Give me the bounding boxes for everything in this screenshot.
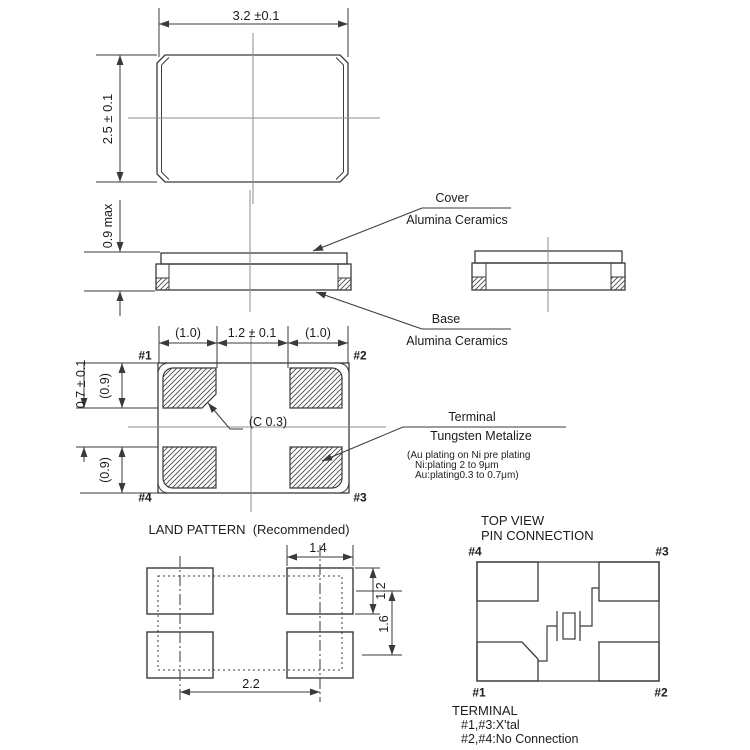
pin-connection-title-line1: TOP VIEW: [481, 514, 544, 528]
dim-pad-spacing: 1.2 ± 0.1: [228, 327, 277, 341]
pin-connection-title-line2: PIN CONNECTION: [481, 529, 594, 543]
pc-trace-pin3: [580, 588, 599, 626]
pin-connection-pin-4: #4: [468, 545, 481, 558]
terminal-label: Terminal: [448, 411, 495, 425]
chamfer-note: (C 0.3): [249, 416, 287, 430]
pad-1-with-chamfer: [163, 368, 216, 408]
pad-2: [290, 368, 342, 408]
cover-material-label: Alumina Ceramics: [406, 214, 507, 228]
land-pattern-title: LAND PATTERN (Recommended): [148, 523, 349, 537]
bottom-view-pin-4: #4: [138, 491, 151, 504]
cover-label: Cover: [435, 192, 468, 206]
pc-pad-1: [477, 642, 538, 681]
dim-package-thickness: 0.9 max: [102, 204, 116, 248]
pin-connection-pin-1: #1: [472, 686, 485, 699]
terminal-material-label: Tungsten Metalize: [430, 430, 532, 444]
dim-land-pitch-vertical: 1.6: [378, 615, 392, 632]
base-material-label: Alumina Ceramics: [406, 335, 507, 349]
terminal-legend-line1: #1,#3:X'tal: [461, 719, 520, 733]
bottom-view-pin-3: #3: [353, 491, 366, 504]
top-view-dimensions: [96, 8, 348, 182]
base-callout-leader: [316, 292, 511, 329]
pc-pad-2: [599, 642, 659, 681]
pc-trace-pin1: [538, 626, 557, 661]
bottom-view-pin-1: #1: [138, 349, 151, 362]
dim-land-pitch-horizontal: 2.2: [242, 678, 259, 692]
dim-land-pad-width: 1.4: [309, 542, 326, 556]
datasheet-drawing-page: 3.2 ±0.1 2.5 ± 0.1 0.9 max Cover Alumina…: [0, 0, 750, 750]
pin-connection-diagram: [477, 562, 659, 681]
bottom-view-pin-2: #2: [353, 349, 366, 362]
dim-pad-width-left: (1.0): [175, 327, 201, 341]
dim-pad-length-bottom: (0.9): [99, 457, 113, 483]
terminal-legend-line2: #2,#4:No Connection: [461, 733, 578, 747]
terminal-legend-title: TERMINAL: [452, 704, 518, 718]
pad-4: [163, 447, 216, 488]
pad-3: [290, 447, 342, 488]
pin-connection-pin-2: #2: [654, 686, 667, 699]
top-view-centerlines: [128, 33, 380, 204]
crystal-symbol: [557, 611, 580, 641]
pc-pad-4: [477, 562, 538, 601]
base-label: Base: [432, 313, 461, 327]
side-view-front: [156, 253, 351, 290]
dim-package-height: 2.5 ± 0.1: [101, 94, 115, 145]
side-view-height-dimension: [84, 200, 160, 316]
pin-connection-pin-3: #3: [655, 545, 668, 558]
plating-note-line-3: Au:plating0.3 to 0.7μm): [415, 470, 519, 481]
dim-pad-width-right: (1.0): [305, 327, 331, 341]
dim-pad-gap: 0.7 ± 0.1: [75, 360, 89, 409]
pc-pad-3: [599, 562, 659, 601]
dim-package-width: 3.2 ±0.1: [233, 9, 280, 23]
dim-pad-length-top: (0.9): [99, 373, 113, 399]
dim-land-pad-height: 1.2: [375, 582, 389, 599]
land-pattern-pads: [147, 568, 353, 678]
chamfer-note-leader: [208, 403, 243, 429]
